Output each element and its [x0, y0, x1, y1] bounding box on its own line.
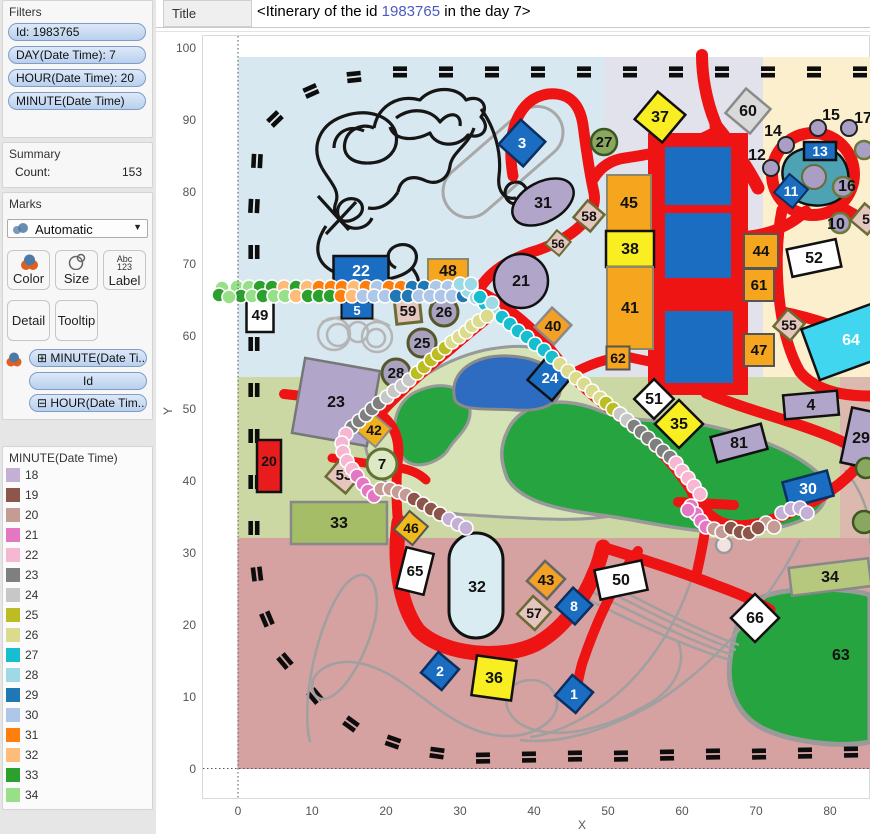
svg-text:5: 5	[353, 303, 360, 318]
svg-text:42: 42	[366, 422, 382, 438]
svg-text:30: 30	[799, 481, 817, 498]
svg-text:17: 17	[854, 110, 870, 127]
svg-text:51: 51	[645, 391, 663, 408]
svg-text:40: 40	[545, 318, 562, 335]
svg-text:10: 10	[827, 216, 845, 233]
svg-text:21: 21	[512, 273, 530, 290]
svg-text:26: 26	[436, 304, 453, 321]
svg-text:63: 63	[832, 647, 850, 664]
svg-text:43: 43	[538, 572, 555, 589]
svg-text:27: 27	[596, 134, 613, 151]
svg-text:47: 47	[751, 342, 768, 359]
svg-text:12: 12	[748, 147, 766, 164]
svg-text:31: 31	[534, 195, 552, 212]
svg-text:22: 22	[352, 263, 370, 280]
svg-text:38: 38	[621, 241, 639, 258]
svg-text:59: 59	[400, 303, 417, 320]
svg-text:33: 33	[330, 515, 348, 532]
svg-text:61: 61	[751, 277, 768, 294]
svg-text:44: 44	[753, 243, 770, 260]
svg-text:29: 29	[852, 430, 870, 447]
svg-text:8: 8	[570, 598, 578, 614]
svg-text:11: 11	[784, 183, 799, 199]
svg-text:35: 35	[670, 416, 688, 433]
svg-text:1: 1	[570, 686, 578, 702]
svg-text:20: 20	[261, 453, 277, 469]
svg-text:50: 50	[612, 572, 630, 589]
svg-text:15: 15	[822, 107, 840, 124]
svg-text:56: 56	[551, 237, 565, 251]
svg-text:48: 48	[439, 263, 457, 280]
svg-text:4: 4	[807, 397, 816, 414]
svg-text:52: 52	[805, 250, 823, 267]
svg-text:23: 23	[327, 394, 345, 411]
svg-text:13: 13	[812, 143, 828, 159]
svg-text:36: 36	[485, 670, 503, 687]
svg-text:37: 37	[651, 109, 669, 126]
svg-text:62: 62	[610, 350, 626, 366]
svg-text:66: 66	[746, 610, 764, 627]
svg-text:24: 24	[542, 370, 559, 387]
svg-text:64: 64	[842, 332, 860, 349]
svg-text:25: 25	[414, 335, 431, 352]
svg-text:41: 41	[621, 300, 639, 317]
svg-text:3: 3	[518, 135, 526, 152]
svg-text:81: 81	[730, 435, 748, 452]
svg-text:34: 34	[821, 569, 839, 586]
svg-text:14: 14	[764, 123, 782, 140]
svg-text:55: 55	[781, 317, 797, 333]
svg-text:49: 49	[252, 307, 269, 324]
svg-text:65: 65	[407, 563, 424, 580]
svg-text:7: 7	[378, 456, 386, 473]
svg-text:46: 46	[403, 520, 419, 536]
svg-text:5: 5	[862, 211, 870, 227]
svg-text:16: 16	[838, 178, 856, 195]
svg-text:58: 58	[581, 208, 597, 224]
svg-text:32: 32	[468, 579, 486, 596]
svg-text:60: 60	[739, 103, 757, 120]
svg-text:45: 45	[620, 195, 638, 212]
svg-text:2: 2	[436, 663, 444, 679]
svg-text:57: 57	[526, 605, 542, 621]
